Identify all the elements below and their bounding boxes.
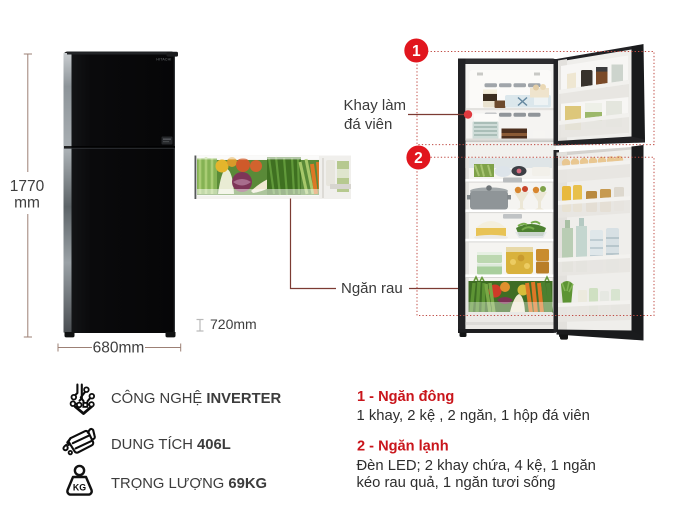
- svg-text:Ngăn rau: Ngăn rau: [341, 280, 403, 297]
- svg-text:2: 2: [414, 150, 423, 167]
- svg-text:KG: KG: [73, 483, 86, 493]
- svg-text:CÔNG NGHỆ INVERTER: CÔNG NGHỆ INVERTER: [111, 390, 282, 407]
- svg-text:680mm: 680mm: [93, 340, 145, 357]
- svg-text:1770: 1770: [10, 178, 45, 195]
- svg-text:HITACHI: HITACHI: [156, 57, 171, 61]
- svg-text:TRỌNG LƯỢNG 69KG: TRỌNG LƯỢNG 69KG: [111, 476, 267, 492]
- svg-text:kéo rau quả, 1 ngăn tươi sống: kéo rau quả, 1 ngăn tươi sống: [357, 475, 556, 491]
- svg-text:Đèn LED; 2 khay chứa, 4 kệ, 1: Đèn LED; 2 khay chứa, 4 kệ, 1 ngăn: [357, 458, 596, 474]
- svg-text:1: 1: [412, 43, 421, 60]
- svg-text:720mm: 720mm: [210, 316, 257, 332]
- svg-text:1 - Ngăn đông: 1 - Ngăn đông: [357, 389, 454, 405]
- svg-text:1 khay, 2 kệ , 2 ngăn, 1 hộp đ: 1 khay, 2 kệ , 2 ngăn, 1 hộp đá viên: [357, 408, 590, 424]
- svg-text:mm: mm: [14, 195, 40, 212]
- svg-text:2 - Ngăn lạnh: 2 - Ngăn lạnh: [357, 439, 449, 455]
- svg-text:DUNG TÍCH 406L: DUNG TÍCH 406L: [111, 436, 231, 453]
- svg-text:đá viên: đá viên: [344, 116, 392, 133]
- svg-text:Khay làm: Khay làm: [344, 97, 407, 114]
